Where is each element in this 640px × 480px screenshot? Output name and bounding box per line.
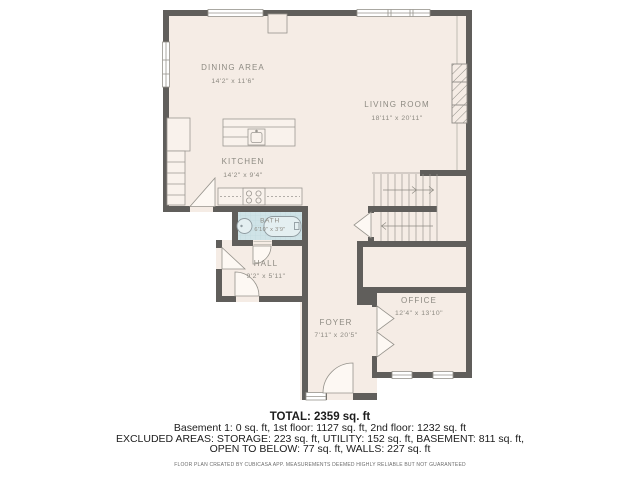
svg-text:14'2" x 11'6": 14'2" x 11'6" [211, 78, 254, 85]
window-top-right [357, 10, 430, 17]
svg-text:14'2" x 9'4": 14'2" x 9'4" [223, 172, 263, 179]
kitchen-island [223, 119, 295, 146]
svg-text:OFFICE: OFFICE [401, 296, 437, 305]
floorplan-drawing: DINING AREA 14'2" x 11'6" LIVING ROOM 18… [0, 0, 640, 410]
svg-text:KITCHEN: KITCHEN [222, 157, 265, 166]
bath-sink [237, 219, 252, 234]
svg-text:12'4" x 13'10": 12'4" x 13'10" [395, 310, 443, 317]
area-summary: TOTAL: 2359 sq. ft Basement 1: 0 sq. ft,… [0, 411, 640, 468]
kitchen-counter [218, 188, 302, 205]
window-office-2 [433, 372, 453, 379]
floorplan-page: DINING AREA 14'2" x 11'6" LIVING ROOM 18… [0, 0, 640, 480]
window-left [163, 42, 170, 87]
svg-text:FOYER: FOYER [319, 318, 352, 327]
svg-text:BATH: BATH [260, 218, 280, 225]
window-top-left [208, 10, 263, 17]
pantry-shelves [167, 151, 185, 205]
disclaimer-text: FLOOR PLAN CREATED BY CUBICASA APP. MEAS… [0, 462, 640, 468]
chimney-box [268, 14, 287, 33]
svg-text:9'2" x 5'11": 9'2" x 5'11" [247, 273, 286, 280]
svg-text:DINING AREA: DINING AREA [201, 63, 265, 72]
svg-text:HALL: HALL [254, 259, 278, 268]
svg-text:18'11" x 20'11": 18'11" x 20'11" [371, 115, 422, 122]
tub-faucet [295, 223, 300, 230]
svg-text:6'10" x 3'9": 6'10" x 3'9" [254, 227, 285, 233]
floor-areas-line: Basement 1: 0 sq. ft, 1st floor: 1127 sq… [0, 423, 640, 434]
excluded-areas-line-2: OPEN TO BELOW: 77 sq. ft, WALLS: 227 sq.… [0, 444, 640, 455]
window-office-1 [392, 372, 412, 379]
fridge [167, 118, 190, 151]
svg-text:7'11" x 20'5": 7'11" x 20'5" [314, 332, 357, 339]
svg-text:LIVING ROOM: LIVING ROOM [364, 100, 429, 109]
window-foyer [306, 393, 326, 401]
